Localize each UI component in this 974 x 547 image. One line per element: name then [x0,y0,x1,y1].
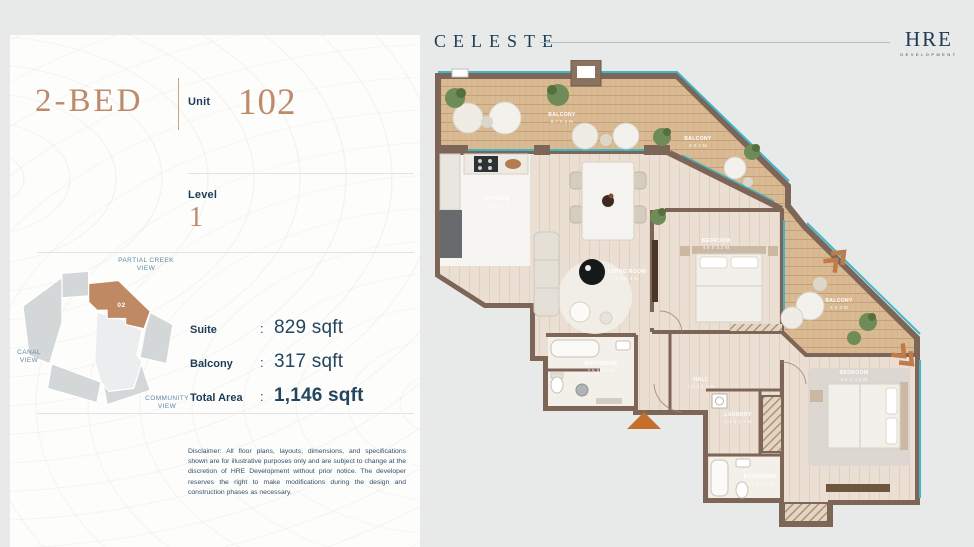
room-dims: 3.6 X 4.2 M [841,377,868,382]
room-dims: 8.7 X 2 M [551,119,573,124]
developer-subtitle: DEVELOPMENT [897,53,961,57]
header-rule [540,42,890,43]
unit-type-heading: 2-BED [35,83,144,120]
spec-label: Suite [190,324,260,336]
room-dims: 1.4 X 1.7 M [725,419,752,424]
room-dims: 3 X 3 M [830,305,848,310]
room-label: HALL [694,377,709,383]
room-label: BATHROOM [744,474,776,480]
keyplan-block [48,364,101,403]
room-dims: 1.2 X 1.1 M [688,384,715,389]
view-label-canal: CANAL VIEW [10,349,48,366]
room-dims: 4.5 X 3.2 M [703,245,730,250]
room-label: BEDROOM [702,238,731,244]
keyplan-block [62,271,89,298]
level-label: Level [188,189,217,201]
keyplan-unit-tag: 02 [117,302,125,309]
spec-value: 317 sqft [274,351,343,373]
room-dims: 4.5 X 4 M [616,276,638,281]
spec-colon: : [260,389,274,404]
spec-label: Total Area [190,392,260,404]
spec-value: 829 sqft [274,317,343,339]
vertical-divider [178,78,179,130]
keyplan: 02 PARTIAL CREEK VIEW CANAL VIEW COMMUNI… [10,255,192,415]
unit-label: Unit [188,96,210,108]
spec-label: Balcony [190,358,260,370]
room-dims: 2.4 X 1.5 M [747,481,774,486]
divider [37,413,414,414]
room-label: KITCHEN [484,196,509,202]
spec-value: 1,146 sqft [274,385,364,407]
room-label: LIVING ROOM [608,269,646,275]
developer-logo: HRE DEVELOPMENT [897,27,961,57]
area-specs: Suite : 829 sqft Balcony : 317 sqft Tota… [190,317,416,419]
room-label: LAUNDRY [724,412,751,418]
room-label: BALCONY [684,136,712,142]
room-label: BEDROOM [840,370,869,376]
floorplan: BALCONY 8.7 X 2 M BALCONY 2 X 2 M KITCHE… [430,60,960,547]
developer-name: HRE [897,27,961,52]
room-label: BATHROOM [585,361,617,367]
unit-number: 102 [238,81,297,124]
view-label-partial-creek: PARTIAL CREEK VIEW [114,257,178,274]
brochure-page: 2-BED Unit 102 Level 1 02 PARTIAL [0,0,974,547]
spec-colon: : [260,355,274,370]
view-label-community: COMMUNITY VIEW [136,395,198,412]
room-dims: 2.5 X 1.5 M [588,368,615,373]
room-label: BALCONY [825,298,853,304]
unit-info-card: 2-BED Unit 102 Level 1 02 PARTIAL [10,35,420,547]
divider [37,252,414,253]
keyplan-diagram: 02 [18,263,188,415]
level-value: 1 [189,202,203,234]
spec-row-balcony: Balcony : 317 sqft [190,351,416,375]
disclaimer-text: Disclaimer: All floor plans, layouts, di… [188,447,406,498]
divider [188,173,414,174]
spec-row-suite: Suite : 829 sqft [190,317,416,341]
room-dims: 2.6 X 2.2 M [484,203,511,208]
spec-colon: : [260,321,274,336]
spec-row-total-area: Total Area : 1,146 sqft [190,385,416,409]
room-label: BALCONY [548,112,576,118]
room-dims: 2 X 2 M [689,143,707,148]
